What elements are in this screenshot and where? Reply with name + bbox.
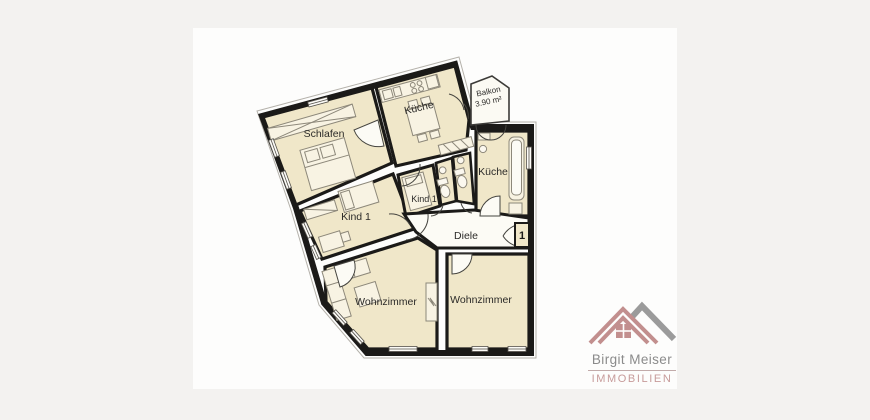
logo-tagline-text: IMMOBILIEN	[586, 373, 678, 386]
room-label-diele: Diele	[454, 230, 478, 242]
entrance-number-label: 1	[519, 230, 525, 242]
room-label-schlafen: Schlafen	[304, 128, 345, 140]
room-label-kueche-right: Küche	[478, 166, 508, 178]
wohnzimmer-left-shelf	[426, 283, 437, 321]
agency-logo: Birgit Meiser IMMOBILIEN	[586, 299, 678, 386]
logo-roofs-icon	[586, 299, 678, 347]
room-label-kind1-left: Kind 1	[341, 211, 371, 223]
page-background: Schlafen Küche Küche Kind 1 Kind 1 Diele…	[0, 0, 870, 420]
logo-name-text: Birgit Meiser	[586, 353, 678, 368]
logo-divider	[588, 370, 676, 371]
room-label-kind1-small: Kind 1	[411, 194, 437, 204]
room-label-wohnzimmer-left: Wohnzimmer	[355, 296, 417, 308]
room-label-wohnzimmer-right: Wohnzimmer	[450, 294, 512, 306]
